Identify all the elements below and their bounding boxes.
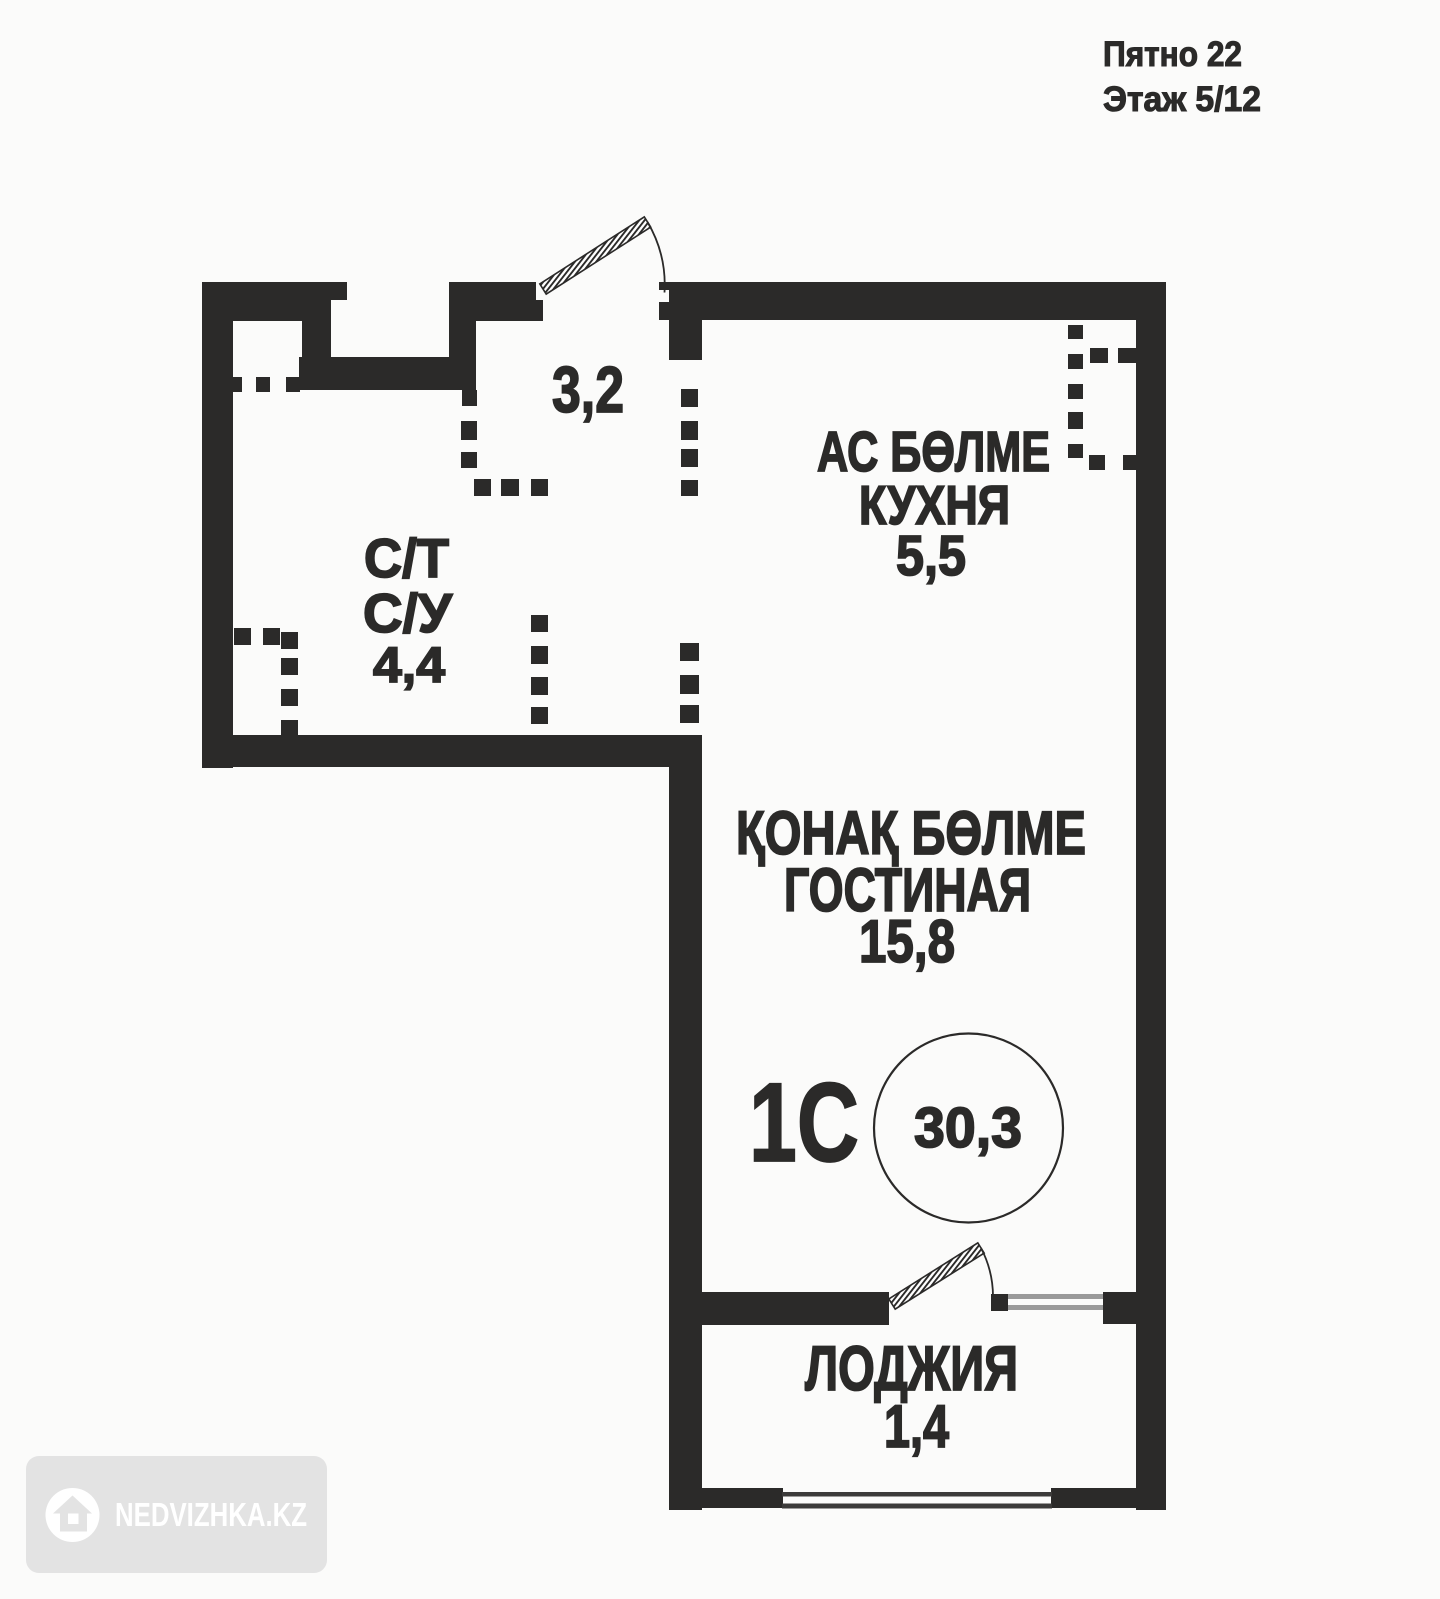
svg-text:NEDVIZHKA.KZ: NEDVIZHKA.KZ bbox=[115, 1496, 307, 1533]
svg-text:5,5: 5,5 bbox=[896, 524, 966, 588]
svg-text:3,2: 3,2 bbox=[552, 353, 624, 426]
svg-text:С/Т: С/Т bbox=[364, 527, 449, 589]
svg-text:Пятно 22: Пятно 22 bbox=[1103, 35, 1242, 74]
svg-text:15,8: 15,8 bbox=[859, 908, 955, 975]
svg-text:С/У: С/У bbox=[363, 582, 453, 644]
svg-text:1С: 1С bbox=[749, 1060, 859, 1185]
svg-text:4,4: 4,4 bbox=[373, 637, 445, 693]
svg-text:1,4: 1,4 bbox=[884, 1393, 949, 1460]
svg-text:Этаж 5/12: Этаж 5/12 bbox=[1103, 80, 1261, 119]
svg-text:30,3: 30,3 bbox=[914, 1096, 1022, 1160]
